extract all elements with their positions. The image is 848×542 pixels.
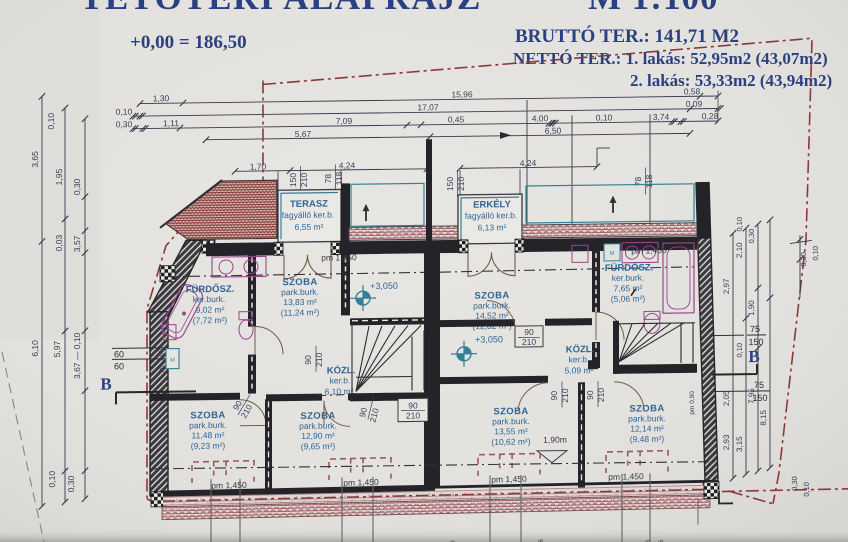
svg-text:0,10: 0,10	[47, 471, 57, 488]
svg-text:13,55 m²: 13,55 m²	[494, 426, 528, 436]
svg-text:BRUTTÓ TER.: 141,71 M2: BRUTTÓ TER.: 141,71 M2	[515, 25, 739, 47]
svg-text:0,10: 0,10	[46, 113, 56, 130]
svg-text:0,28: 0,28	[702, 111, 719, 121]
svg-text:210: 210	[596, 388, 606, 403]
svg-text:ker.burk.: ker.burk.	[612, 272, 645, 282]
svg-text:0,30: 0,30	[72, 178, 82, 195]
svg-text:pm 1,450: pm 1,450	[491, 474, 527, 485]
svg-text:2,05: 2,05	[722, 390, 731, 406]
svg-text:210: 210	[560, 388, 570, 403]
svg-text:90: 90	[524, 327, 534, 337]
svg-text:75: 75	[750, 324, 760, 334]
svg-text:(9,65 m²): (9,65 m²)	[301, 441, 336, 451]
svg-text:90: 90	[585, 390, 595, 400]
svg-text:(11,24 m²): (11,24 m²)	[281, 307, 320, 318]
svg-text:0,03: 0,03	[54, 235, 64, 252]
svg-text:210: 210	[314, 352, 324, 367]
svg-text:7,09: 7,09	[336, 116, 353, 126]
svg-text:park.burk.: park.burk.	[189, 420, 227, 430]
svg-text:0,10: 0,10	[116, 107, 133, 117]
svg-text:0,30: 0,30	[790, 476, 799, 491]
svg-text:0,30: 0,30	[747, 229, 756, 244]
svg-text:NETTÓ TER.: 1. lakás: 52,95m2: NETTÓ TER.: 1. lakás: 52,95m2 (43,07m2)	[513, 49, 828, 68]
svg-text:90: 90	[549, 391, 559, 401]
svg-text:pm 1,80: pm 1,80	[158, 349, 165, 373]
svg-text:1,90m: 1,90m	[543, 434, 567, 444]
svg-text:(5,06 m²): (5,06 m²)	[611, 293, 646, 303]
svg-text:78: 78	[323, 174, 333, 184]
svg-text:0,58: 0,58	[684, 86, 701, 96]
svg-text:pm 1,450: pm 1,450	[631, 245, 667, 255]
svg-text:4,00: 4,00	[532, 113, 549, 123]
svg-text:7,65 m²: 7,65 m²	[614, 283, 643, 293]
svg-text:0,09: 0,09	[686, 99, 703, 109]
svg-text:+3,050: +3,050	[475, 334, 503, 344]
svg-text:13,83 m²: 13,83 m²	[283, 297, 317, 307]
svg-text:2,10: 2,10	[735, 242, 744, 258]
svg-text:pm 1,450: pm 1,450	[321, 252, 357, 262]
svg-text:B: B	[100, 374, 111, 393]
svg-text:pm 1,450: pm 1,450	[608, 471, 644, 482]
svg-text:park.burk.: park.burk.	[281, 287, 319, 297]
svg-text:park.burk.: park.burk.	[492, 416, 530, 426]
svg-text:ker.b.: ker.b.	[569, 354, 590, 364]
svg-text:4,24: 4,24	[520, 158, 537, 168]
svg-text:210: 210	[522, 337, 536, 347]
svg-text:0,10: 0,10	[802, 482, 811, 497]
svg-text:210: 210	[406, 410, 420, 420]
svg-text:3,15: 3,15	[735, 436, 744, 452]
svg-text:17,07: 17,07	[417, 102, 439, 112]
svg-text:+0,00 = 186,50: +0,00 = 186,50	[130, 32, 247, 53]
svg-text:2. lakás: 53,33m2 (43,94m2): 2. lakás: 53,33m2 (43,94m2)	[630, 71, 832, 90]
svg-text:ERKÉLY: ERKÉLY	[473, 199, 511, 211]
svg-text:M: M	[170, 358, 175, 364]
svg-text:park.burk.: park.burk.	[473, 300, 511, 310]
svg-text:150: 150	[748, 337, 763, 347]
svg-text:60: 60	[114, 361, 124, 371]
svg-text:2,93: 2,93	[722, 434, 731, 450]
svg-text:+3,050: +3,050	[370, 281, 398, 291]
svg-text:3,57: 3,57	[72, 235, 82, 252]
svg-text:1,70: 1,70	[250, 161, 267, 171]
svg-text:(10,62 m²): (10,62 m²)	[491, 436, 530, 447]
svg-text:6,50: 6,50	[545, 126, 562, 136]
svg-text:0,30: 0,30	[66, 475, 76, 492]
svg-text:0,10: 0,10	[735, 343, 744, 358]
svg-text:park.burk.: park.burk.	[628, 413, 666, 423]
svg-text:75: 75	[754, 380, 764, 390]
svg-text:90: 90	[303, 355, 313, 365]
svg-text:5,67: 5,67	[295, 129, 312, 139]
svg-text:2,97: 2,97	[722, 278, 731, 294]
svg-text:1,95: 1,95	[54, 169, 64, 186]
svg-text:4,24: 4,24	[339, 160, 356, 170]
svg-text:0,10: 0,10	[811, 246, 820, 261]
svg-text:5,97: 5,97	[52, 341, 62, 358]
svg-text:(9,23 m²): (9,23 m²)	[191, 440, 226, 450]
svg-text:TERASZ: TERASZ	[290, 199, 328, 210]
svg-text:90: 90	[408, 400, 418, 410]
svg-text:1,90: 1,90	[747, 300, 756, 316]
svg-text:3,74: 3,74	[653, 112, 670, 122]
svg-text:60: 60	[114, 349, 124, 359]
svg-text:TETŐTÉRI ALAPRAJZ: TETŐTÉRI ALAPRAJZ	[80, 0, 482, 17]
svg-text:150: 150	[752, 393, 767, 403]
svg-text:0,10: 0,10	[596, 112, 613, 122]
svg-text:0,10: 0,10	[735, 217, 744, 232]
svg-text:M 1:100: M 1:100	[588, 0, 718, 17]
svg-text:pm 1,450: pm 1,450	[211, 480, 247, 491]
svg-text:pm 1,450: pm 1,450	[343, 477, 379, 488]
svg-text:ker.burk.: ker.burk.	[193, 294, 226, 304]
svg-text:12,90 m²: 12,90 m²	[301, 431, 335, 441]
svg-text:B: B	[748, 347, 759, 366]
svg-text:150: 150	[445, 177, 455, 192]
svg-text:6,13 m²: 6,13 m²	[478, 222, 507, 232]
svg-text:150: 150	[288, 173, 298, 188]
svg-text:(9,48 m²): (9,48 m²)	[630, 434, 665, 444]
svg-text:0,45: 0,45	[448, 114, 465, 124]
svg-text:0,30: 0,30	[116, 119, 133, 129]
svg-text:1,11: 1,11	[163, 118, 179, 128]
svg-text:6,10: 6,10	[30, 340, 40, 357]
svg-text:12,14 m²: 12,14 m²	[630, 423, 664, 433]
svg-text:(7,72 m²): (7,72 m²)	[193, 315, 228, 325]
svg-text:ker.b.: ker.b.	[330, 375, 351, 385]
svg-text:14,52 m²: 14,52 m²	[475, 310, 509, 320]
svg-text:8,15: 8,15	[759, 410, 768, 426]
svg-text:6,55 m²: 6,55 m²	[295, 222, 324, 232]
svg-text:1,30: 1,30	[153, 93, 170, 103]
svg-text:9,02 m²: 9,02 m²	[196, 304, 225, 314]
svg-text:park.burk.: park.burk.	[299, 420, 337, 430]
svg-text:pm 0,90: pm 0,90	[689, 391, 696, 415]
svg-text:15,96: 15,96	[451, 89, 473, 99]
svg-text:M: M	[610, 251, 615, 257]
svg-text:3,67 — 0,10: 3,67 — 0,10	[72, 332, 82, 379]
svg-text:3,65: 3,65	[30, 151, 40, 168]
svg-text:fagyálló ker.b.: fagyálló ker.b.	[282, 210, 334, 221]
svg-text:11,48 m²: 11,48 m²	[192, 430, 225, 440]
svg-text:fagyálló ker.b.: fagyálló ker.b.	[465, 210, 517, 221]
